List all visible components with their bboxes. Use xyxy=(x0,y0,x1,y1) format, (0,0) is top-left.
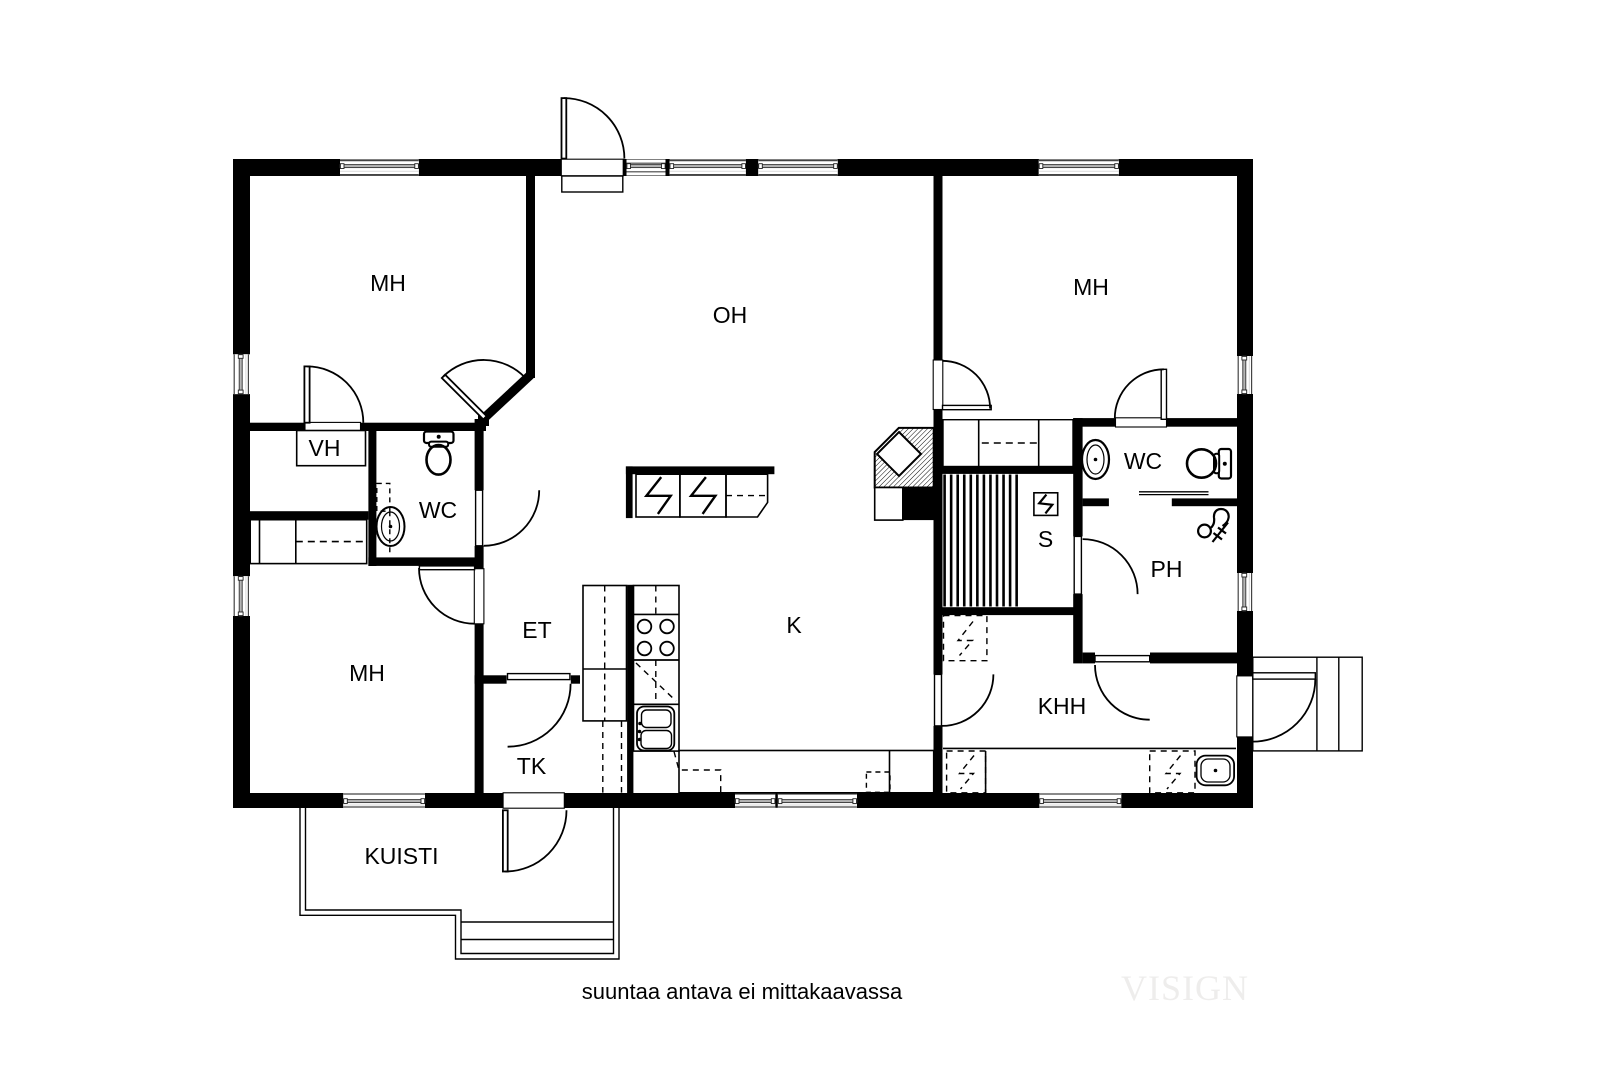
svg-text:suuntaa antava ei mittakaavass: suuntaa antava ei mittakaavassa xyxy=(582,979,903,1004)
svg-text:VH: VH xyxy=(309,435,341,461)
svg-text:MH: MH xyxy=(370,270,406,296)
svg-text:ET: ET xyxy=(522,617,551,643)
svg-text:VISIGN: VISIGN xyxy=(1121,968,1249,1008)
svg-text:WC: WC xyxy=(1124,448,1162,474)
svg-text:S: S xyxy=(1038,526,1053,552)
svg-text:OH: OH xyxy=(713,302,748,328)
svg-text:MH: MH xyxy=(1073,274,1109,300)
svg-text:KUISTI: KUISTI xyxy=(364,843,438,869)
svg-text:KHH: KHH xyxy=(1038,693,1087,719)
svg-text:TK: TK xyxy=(517,753,547,779)
svg-text:MH: MH xyxy=(349,660,385,686)
svg-text:K: K xyxy=(786,612,802,638)
svg-text:PH: PH xyxy=(1151,556,1183,582)
svg-text:WC: WC xyxy=(419,497,457,523)
